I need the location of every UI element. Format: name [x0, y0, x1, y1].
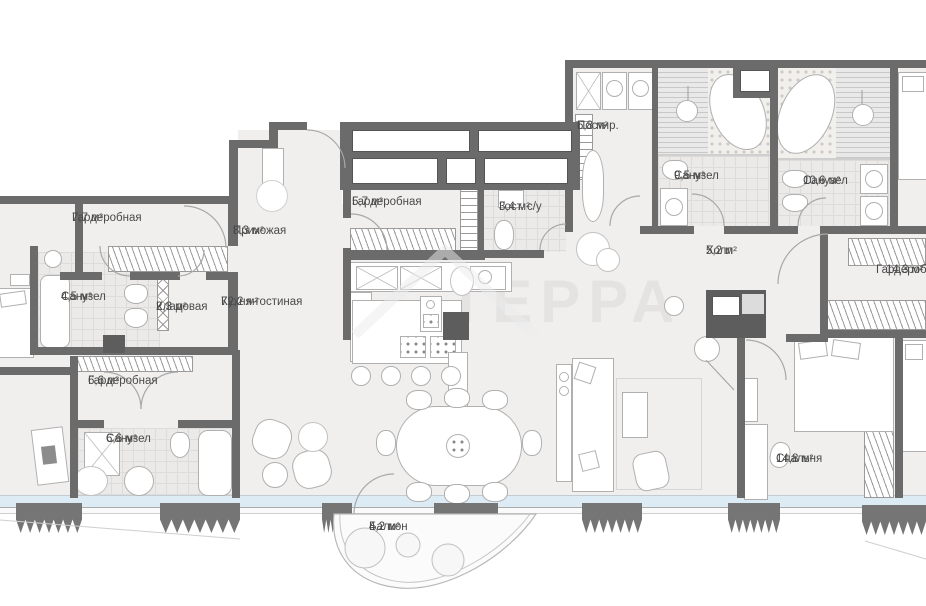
- wall: [130, 272, 180, 280]
- dining-chair-icon: [444, 388, 470, 408]
- bar-stool-icon: [381, 366, 401, 386]
- shelf-ladder: [460, 184, 478, 254]
- wall: [70, 420, 104, 428]
- facade-pier: [582, 503, 642, 533]
- wall: [343, 190, 351, 218]
- wall: [786, 334, 828, 342]
- sink-bowl-icon: [478, 270, 492, 284]
- wardrobe-hatch: [350, 228, 456, 252]
- wall: [890, 64, 898, 228]
- glass-partition: [658, 154, 770, 156]
- structural-column: [103, 335, 125, 353]
- shaft-niche: [446, 158, 476, 184]
- wall: [229, 140, 238, 204]
- room-area: 6,6 м²: [88, 373, 119, 389]
- side-table: [622, 392, 648, 438]
- toilet-icon: [170, 432, 190, 458]
- room-area: 3,4 м²: [499, 199, 530, 215]
- shaft-icon: [576, 72, 601, 110]
- dining-chair-icon: [376, 430, 396, 456]
- sink-bowl-icon: [124, 466, 154, 496]
- wardrobe-hatch: [826, 300, 926, 330]
- speaker-icon: [559, 386, 569, 396]
- bar-stool-icon: [441, 366, 461, 386]
- wall: [178, 420, 236, 428]
- dining-chair-icon: [444, 484, 470, 504]
- shower-head-icon: [852, 104, 874, 126]
- sink-bowl-icon: [426, 300, 435, 309]
- bathtub-icon: [40, 275, 70, 348]
- plant-icon: [298, 422, 328, 452]
- shower-head-icon: [676, 100, 698, 122]
- wardrobe-hatch: [108, 246, 228, 272]
- wall: [480, 250, 544, 258]
- dining-chair-icon: [406, 482, 432, 502]
- wardrobe-hatch: [864, 428, 894, 498]
- shaft-niche: [478, 130, 572, 152]
- room-area: 14,3 м²: [876, 262, 923, 278]
- toilet-icon: [124, 284, 148, 304]
- wall: [724, 226, 798, 234]
- room-area: 4,5 м²: [61, 289, 92, 305]
- shelf: [744, 378, 758, 422]
- sink-bowl-icon: [865, 202, 883, 220]
- room-area: 9,5 м²: [674, 168, 705, 184]
- pillow-icon: [905, 344, 923, 360]
- wall: [0, 196, 238, 204]
- wall: [60, 272, 102, 280]
- kitchen-cabinet: [400, 266, 442, 290]
- dining-chair-icon: [406, 390, 432, 410]
- kitchen-cabinet: [356, 266, 398, 290]
- speaker-icon: [559, 372, 569, 382]
- facade-pier: [434, 503, 498, 533]
- shaft-niche: [484, 158, 568, 184]
- column-shaft: [712, 296, 740, 316]
- room-area: 2,3 м²: [156, 299, 187, 315]
- cooktop-icon: [400, 336, 426, 358]
- room-area: 72,2 м²: [221, 294, 258, 310]
- plant-icon: [450, 266, 474, 296]
- bar-stool-icon: [411, 366, 431, 386]
- dining-chair-icon: [482, 390, 508, 410]
- room-area: 6,8 м²: [577, 118, 608, 134]
- floor-plan: ТЕРРА: [0, 0, 926, 606]
- room-area: 5,7 м²: [352, 194, 383, 210]
- wall: [820, 226, 828, 336]
- balcony-outline: [334, 514, 536, 588]
- pillow-icon: [902, 76, 924, 92]
- shaft-niche: [352, 158, 438, 184]
- ironing-board: [582, 150, 604, 222]
- facade-pier: [728, 503, 780, 533]
- wall: [652, 64, 658, 228]
- plant-icon: [596, 248, 620, 272]
- shelf: [10, 274, 30, 286]
- facade-pier: [322, 503, 352, 533]
- dryer-drum-icon: [632, 80, 649, 97]
- bidet-icon: [782, 194, 808, 212]
- wardrobe-hatch: [75, 356, 193, 372]
- toilet-icon: [494, 220, 514, 250]
- glass-partition: [778, 158, 890, 160]
- dining-chair-icon: [482, 482, 508, 502]
- wall: [30, 347, 236, 355]
- facade-pier: [16, 503, 82, 533]
- facade-pier: [160, 503, 240, 533]
- washer-drum-icon: [606, 80, 623, 97]
- wall: [737, 338, 745, 498]
- wall: [0, 367, 78, 375]
- wall: [269, 122, 307, 130]
- room-area: 8,3 м²: [233, 223, 264, 239]
- bathtub-icon: [198, 430, 232, 496]
- room-area: 7,7 м²: [72, 210, 103, 226]
- sink-bowl-icon: [665, 198, 683, 216]
- wall: [640, 226, 694, 234]
- centerpiece-icon: [446, 434, 470, 458]
- wall: [478, 182, 484, 254]
- wall: [822, 330, 926, 338]
- facade-pier: [862, 505, 926, 535]
- side-table: [262, 462, 288, 488]
- wall: [343, 250, 485, 260]
- laptop-icon: [41, 445, 57, 465]
- structural-column: [443, 312, 469, 340]
- sink-bowl-icon: [44, 250, 62, 268]
- neighbor-balcony-lines: [0, 520, 926, 559]
- room-area: 5,2 м²: [706, 243, 737, 259]
- wall: [343, 248, 351, 340]
- column-pad: [742, 294, 764, 314]
- wall: [826, 226, 926, 234]
- desk: [744, 424, 768, 500]
- room-area: 4,2 м²: [369, 519, 400, 535]
- room-area: 14,8 м²: [776, 451, 813, 467]
- plant-icon: [74, 466, 108, 496]
- bar-stool-icon: [351, 366, 371, 386]
- wall: [228, 278, 238, 350]
- entry-rug: [256, 180, 288, 212]
- wall-niche: [740, 70, 770, 92]
- floor-lamp-icon: [694, 336, 720, 362]
- wall: [30, 246, 38, 350]
- wall: [895, 334, 903, 498]
- drainer-icon: [423, 314, 439, 328]
- balcony-plant-icon: [432, 544, 464, 576]
- room-area: 10,6 м²: [803, 173, 840, 189]
- balcony-plant-icon: [396, 533, 420, 557]
- dining-chair-icon: [522, 430, 542, 456]
- sink-bowl-icon: [865, 170, 883, 188]
- shaft-niche: [352, 130, 470, 152]
- bidet-icon: [124, 308, 148, 328]
- room-area: 6,6 м²: [106, 431, 137, 447]
- coffee-table: [664, 296, 684, 316]
